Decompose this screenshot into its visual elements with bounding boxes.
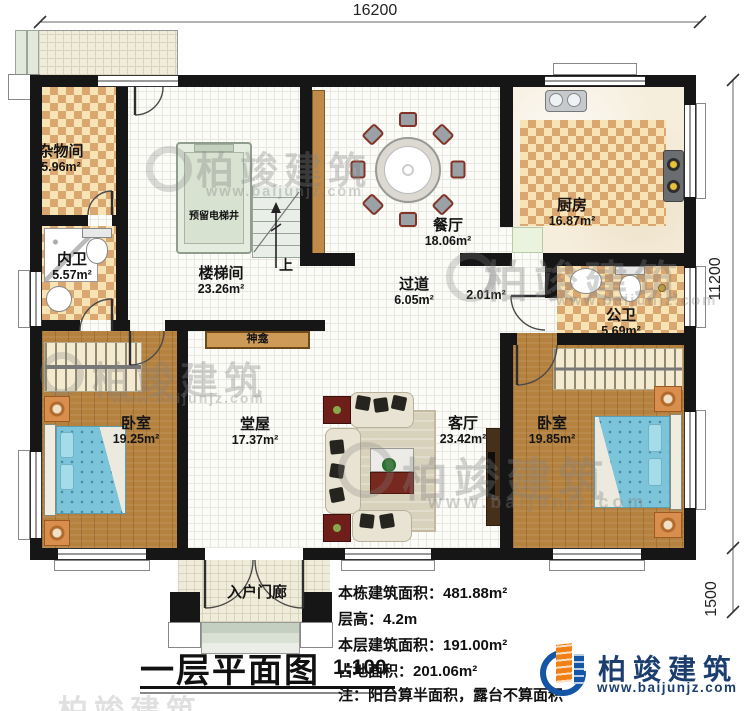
room-label-inner-bath: 内卫 5.57m² — [32, 252, 112, 282]
window-bump-kitchen-top — [553, 63, 637, 75]
porch-pillar-left — [170, 592, 200, 622]
sofa-cushion — [329, 439, 344, 454]
window-bump-innerbath — [18, 270, 30, 328]
floor-plan-page: 预留电梯井 上 神龛 — [0, 0, 750, 711]
wardrobe-right — [553, 348, 683, 390]
room-area: 19.25m² — [96, 433, 176, 447]
dining-table-center — [402, 164, 414, 176]
room-label-bedroom-left: 卧室 19.25m² — [96, 416, 176, 446]
room-label-kitchen: 厨房 16.87m² — [532, 198, 612, 228]
pillow — [60, 432, 74, 458]
dim-top: 16200 — [325, 2, 425, 20]
kitchen-sink-basin-2 — [567, 93, 581, 107]
room-area: 23.26m² — [176, 283, 266, 297]
room-name: 堂屋 — [240, 416, 270, 433]
room-area: 16.87m² — [532, 215, 612, 229]
room-name: 卧室 — [537, 415, 567, 432]
wall-bath-bottom-2 — [112, 320, 130, 331]
nightstand — [654, 512, 682, 538]
room-name: 过道 — [399, 276, 429, 293]
sofa-cushion — [329, 487, 345, 503]
wall-bath-bottom-1 — [36, 320, 80, 331]
room-name: 内卫 — [57, 251, 87, 268]
terrace — [38, 30, 178, 76]
sofa-cushion — [355, 395, 371, 411]
brand-logo-tower-orange — [556, 643, 572, 683]
room-name: 客厅 — [448, 415, 478, 432]
side-table-plant — [333, 406, 341, 414]
pillow — [648, 458, 662, 486]
info-total-area: 本栋建筑面积：481.88m² — [338, 582, 668, 600]
window-kitchen-right — [684, 105, 696, 197]
room-label-living: 客厅 23.42m² — [423, 416, 503, 446]
room-label-stair-hall: 楼梯间 23.26m² — [176, 266, 266, 296]
window-bedroomL-bottom — [58, 548, 146, 560]
bed-left-headboard — [44, 424, 56, 516]
watermark-url: www.baijunjz.com — [556, 292, 717, 309]
watermark-url: www.baijunjz.com — [112, 390, 265, 406]
info-floor-height: 层高：4.2m — [338, 608, 668, 626]
window-bedroomL-left — [30, 452, 42, 538]
room-label-bedroom-right: 卧室 19.85m² — [512, 416, 592, 446]
watermark-url: www.baijunjz.com — [206, 184, 363, 200]
watermark-logo-icon — [40, 352, 84, 396]
window-living-bottom — [345, 548, 431, 560]
wall-storage-bath-2 — [112, 215, 116, 226]
wall-bedroomR-top-1 — [500, 333, 517, 345]
stove-burner-2 — [667, 180, 680, 193]
stove-burner-1 — [667, 158, 680, 171]
room-area: 6.05m² — [374, 294, 454, 308]
side-table-plant — [333, 524, 341, 532]
dining-chair — [399, 112, 417, 127]
window-kitchen-top — [545, 76, 645, 86]
window-bump-bedroomR — [696, 410, 706, 510]
window-bump-bedroomL — [18, 450, 30, 540]
wall-corridor-1 — [300, 253, 355, 266]
sofa-cushion — [359, 513, 375, 529]
room-label-dining: 餐厅 18.06m² — [408, 218, 488, 248]
sofa-cushion — [391, 395, 408, 412]
sofa-cushion — [379, 513, 395, 529]
window-bump-living-bottom — [341, 560, 435, 571]
wall-storage-bath-1 — [42, 215, 88, 226]
wall-stairhall-bottom — [165, 320, 325, 331]
wall-kitchen-left — [500, 87, 513, 227]
room-name: 卧室 — [121, 415, 151, 432]
room-label-porch: 入户门廊 — [197, 585, 317, 602]
pillow — [60, 464, 74, 490]
innerbath-toilet-tank — [82, 228, 112, 238]
watermark-url: www.baijunjz.com — [428, 492, 647, 513]
brand-logo-tower-blue — [574, 654, 584, 684]
shrine-label: 神龛 — [205, 333, 310, 345]
window-storage-top — [98, 75, 178, 87]
pillow — [648, 424, 662, 452]
nightstand — [654, 386, 682, 412]
watermark-text: 柏竣建筑 — [58, 686, 202, 711]
window-bump-bedroomL-bottom — [54, 560, 150, 571]
dining-chair — [451, 161, 466, 179]
innerbath-sink — [46, 286, 72, 312]
room-label-hallway: 过道 6.05m² — [374, 277, 454, 307]
nightstand — [44, 396, 70, 422]
room-label-public-bath: 公卫 5.69m² — [581, 308, 661, 338]
bed-right-headboard — [670, 414, 682, 510]
room-area: 5.57m² — [32, 269, 112, 283]
room-label-storage: 杂物间 5.96m² — [21, 144, 101, 174]
window-bedroomR-bottom — [553, 548, 641, 560]
room-label-main-hall: 堂屋 17.37m² — [215, 417, 295, 447]
window-bedroomR-right — [684, 412, 696, 508]
room-name: 餐厅 — [433, 217, 463, 234]
room-area: 17.37m² — [215, 434, 295, 448]
elevator-label: 预留电梯井 — [178, 211, 250, 222]
window-bump-kitchen-right — [696, 103, 706, 199]
window-bump-bedroomR-bottom — [549, 560, 645, 571]
room-area: 5.69m² — [581, 325, 661, 339]
dim-right-porch: 1500 — [703, 568, 721, 630]
brand-url: www.baijunjz.com — [597, 680, 738, 695]
room-name: 厨房 — [557, 197, 587, 214]
nightstand — [44, 520, 70, 546]
wall-storage-right — [116, 87, 128, 331]
sofa-cushion — [373, 397, 389, 413]
room-area: 18.06m² — [408, 235, 488, 249]
room-area: 5.96m² — [21, 161, 101, 175]
watermark-logo-icon — [146, 146, 192, 192]
page-title: 一层平面图 — [140, 643, 320, 692]
watermark-logo-icon — [338, 442, 394, 498]
stairs-up-label: 上 — [276, 258, 296, 273]
room-name: 楼梯间 — [198, 265, 243, 282]
room-name: 杂物间 — [38, 143, 83, 160]
kitchen-sink-basin-1 — [549, 93, 563, 107]
